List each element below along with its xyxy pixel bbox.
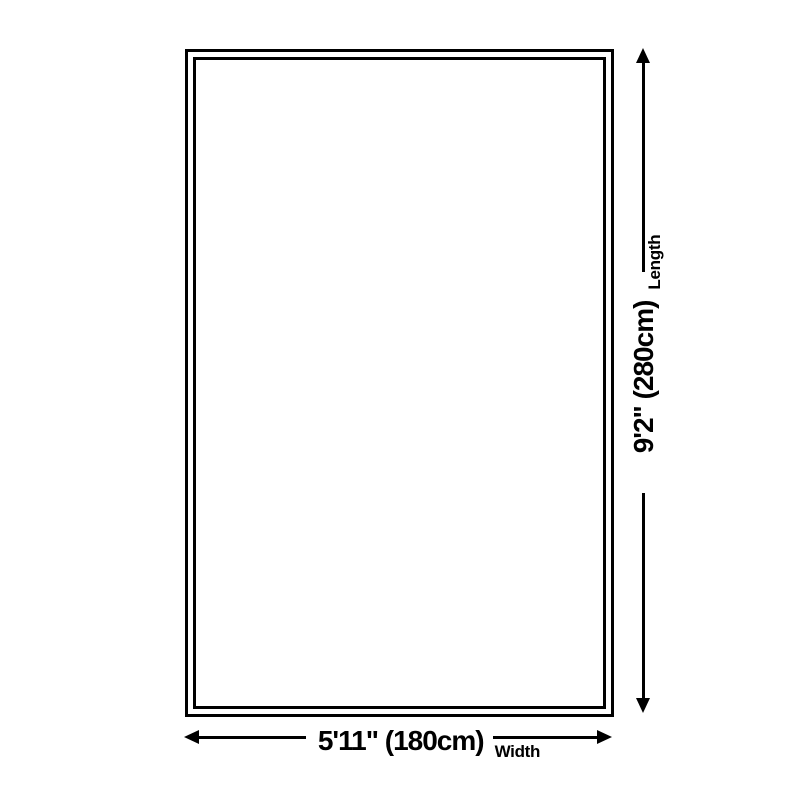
rug-inner-outline <box>193 57 606 709</box>
width-dimension-label: 5'11" (180cm) Width <box>314 727 540 755</box>
rug-outer-outline <box>185 49 614 717</box>
length-name: Length <box>646 235 663 290</box>
size-diagram: 9'2" (280cm) Length 5'11" (180cm) Width <box>0 0 800 800</box>
width-arrow-line-left <box>197 736 306 739</box>
length-dimension-label: 9'2" (280cm) Length <box>630 235 658 458</box>
arrow-down-icon <box>636 698 650 713</box>
arrow-right-icon <box>597 730 612 744</box>
length-arrow-line-bottom <box>642 493 645 700</box>
length-value: 9'2" (280cm) <box>630 297 658 458</box>
width-name: Width <box>495 743 541 760</box>
width-value: 5'11" (180cm) <box>314 727 488 755</box>
